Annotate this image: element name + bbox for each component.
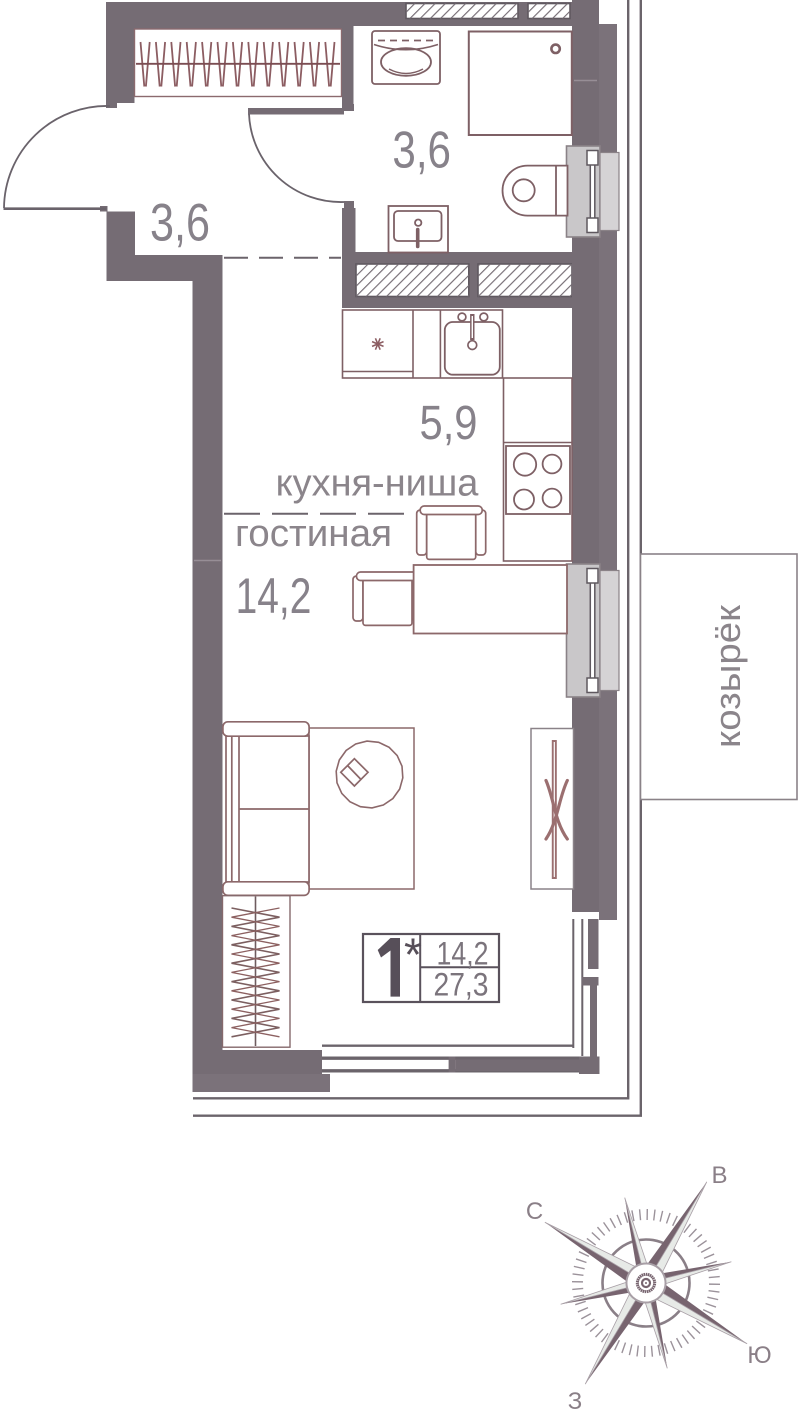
svg-text:кухня-ниша: кухня-ниша bbox=[276, 463, 480, 505]
svg-text:5,9: 5,9 bbox=[420, 396, 478, 450]
svg-text:3,6: 3,6 bbox=[150, 194, 210, 253]
svg-text:З: З bbox=[568, 1388, 583, 1410]
svg-text:3,6: 3,6 bbox=[392, 120, 451, 178]
svg-text:Ю: Ю bbox=[747, 1342, 771, 1369]
svg-text:гостиная: гостиная bbox=[235, 513, 392, 555]
svg-text:С: С bbox=[526, 1198, 543, 1225]
svg-text:*: * bbox=[404, 929, 422, 981]
svg-text:В: В bbox=[711, 1162, 727, 1189]
svg-text:27,3: 27,3 bbox=[434, 966, 489, 1002]
svg-text:козырёк: козырёк bbox=[707, 605, 748, 748]
svg-text:14,2: 14,2 bbox=[236, 568, 312, 624]
